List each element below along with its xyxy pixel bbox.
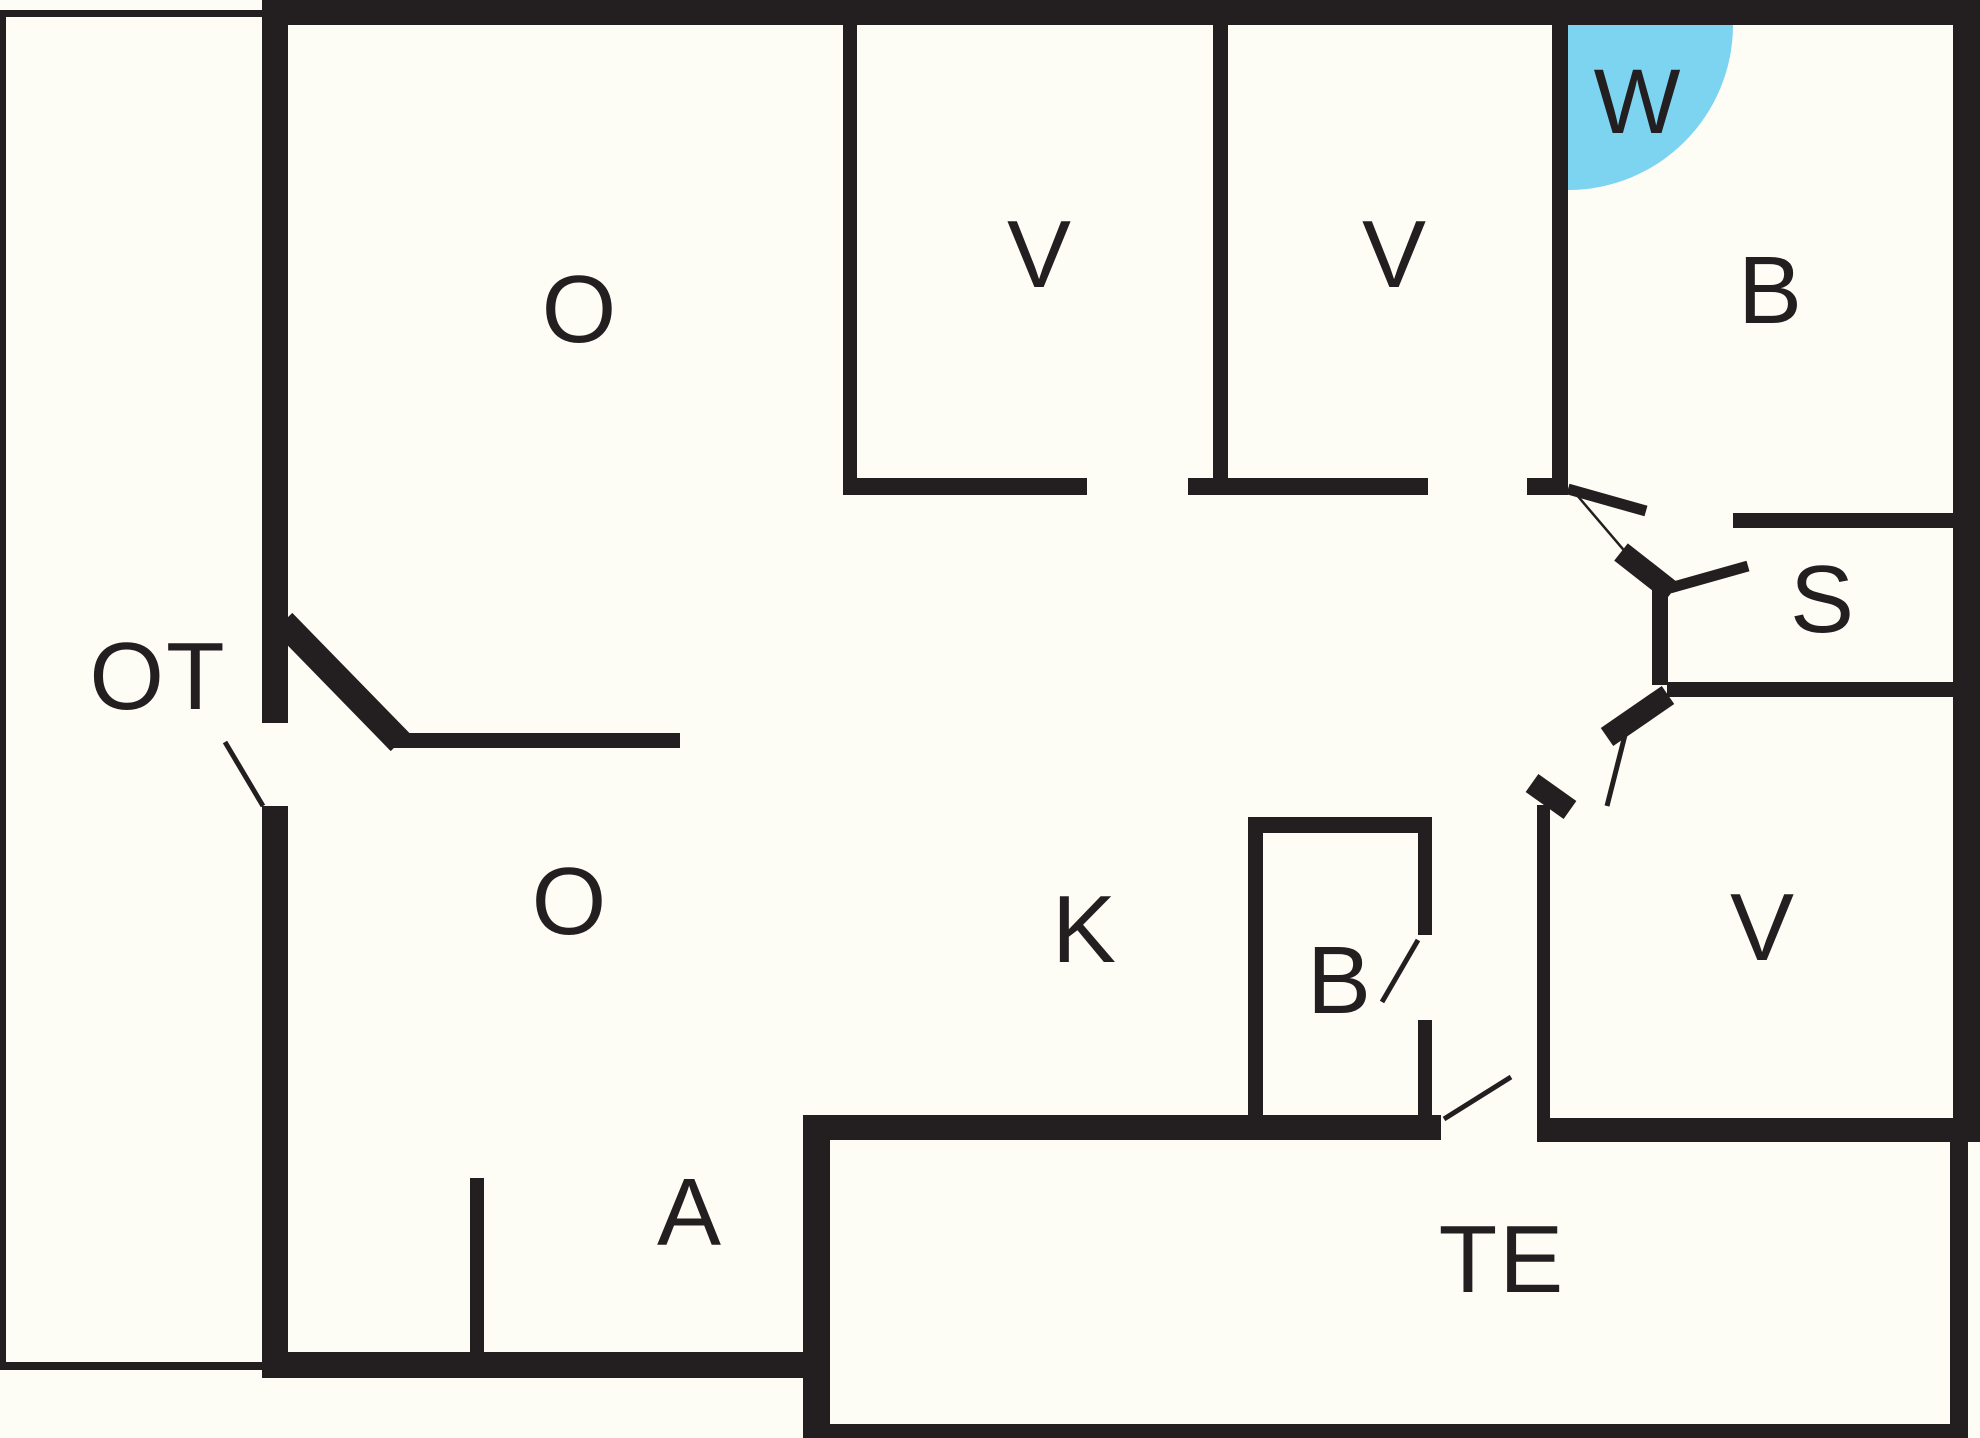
room-label-v-top-1: V bbox=[1007, 207, 1073, 303]
te-door-leaf bbox=[1444, 1077, 1511, 1119]
v2-right-wall bbox=[1552, 25, 1568, 495]
s-top-wall bbox=[1733, 513, 1980, 528]
room-label-k: K bbox=[1052, 882, 1118, 978]
closet-left-wall bbox=[1248, 817, 1263, 1118]
room-label-b-closet: B bbox=[1307, 933, 1373, 1029]
outer-left-wall-upper bbox=[262, 0, 288, 723]
closet-door-leaf bbox=[1382, 940, 1418, 1002]
annex-top-wall bbox=[0, 10, 262, 17]
v-lower-bottom-wall bbox=[1537, 1118, 1980, 1142]
annex-bottom-wall bbox=[0, 1362, 262, 1370]
s-doorway-angled-wall bbox=[1621, 552, 1672, 592]
outer-bottom-left-wall bbox=[262, 1352, 830, 1378]
outer-top-wall bbox=[262, 0, 1980, 25]
closet-right-wall-lower bbox=[1418, 1020, 1432, 1118]
s-bottom-wall bbox=[1667, 682, 1980, 697]
room-label-a: A bbox=[657, 1165, 723, 1261]
hall-wall-stub bbox=[1527, 478, 1568, 495]
room-label-s: S bbox=[1790, 552, 1856, 648]
walls bbox=[0, 0, 1980, 1438]
room-label-o-lower: O bbox=[532, 854, 609, 950]
floor-plan-linework bbox=[0, 0, 1980, 1438]
closet-right-wall-upper bbox=[1418, 833, 1432, 935]
room-label-o-upper: O bbox=[542, 262, 619, 358]
v1-bottom-wall bbox=[843, 478, 1087, 495]
v-lower-door-leaf bbox=[1607, 735, 1625, 806]
room-label-v-top-2: V bbox=[1362, 207, 1428, 303]
te-top-wall bbox=[803, 1115, 1441, 1140]
v2-bottom-wall bbox=[1188, 478, 1428, 495]
closet-top-wall bbox=[1248, 817, 1432, 833]
angled-walls-and-doors bbox=[225, 487, 1748, 1119]
annex-left-wall bbox=[0, 10, 6, 1370]
outer-left-wall-lower bbox=[262, 806, 288, 1378]
room-label-te: TE bbox=[1439, 1212, 1566, 1308]
o-room-inner-wall bbox=[393, 733, 680, 748]
v1-left-wall bbox=[843, 25, 857, 495]
floor-plan: OT O V V W B S O K B V A TE bbox=[0, 0, 1980, 1438]
room-label-w: W bbox=[1594, 56, 1683, 148]
te-left-wall bbox=[803, 1115, 830, 1438]
s-door-leaf bbox=[1670, 566, 1748, 588]
te-bottom-wall bbox=[803, 1424, 1968, 1438]
v1-v2-divider-wall bbox=[1213, 25, 1228, 495]
room-label-v-lower: V bbox=[1730, 880, 1796, 976]
room-label-ot: OT bbox=[89, 629, 226, 725]
ot-door-leaf bbox=[225, 742, 263, 806]
outer-right-wall bbox=[1953, 0, 1980, 1142]
hall-doorway-angled-wall-upper bbox=[1607, 695, 1668, 737]
a-area-wall-stub bbox=[470, 1178, 484, 1358]
v-lower-left-wall bbox=[1537, 805, 1550, 1142]
room-label-b-right: B bbox=[1738, 243, 1804, 339]
te-right-wall bbox=[1950, 1142, 1968, 1438]
o-room-diagonal-wall bbox=[283, 622, 400, 742]
